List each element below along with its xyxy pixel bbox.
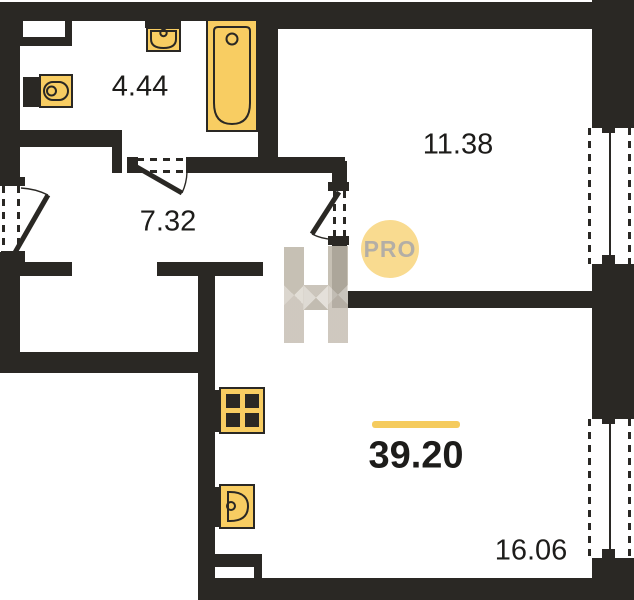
bedroom-door-swing <box>312 192 339 239</box>
room-area-hallway: 7.32 <box>140 206 196 239</box>
total-area-label: 39.20 <box>368 435 463 478</box>
toilet-icon <box>23 75 72 107</box>
room-area-bedroom: 11.38 <box>423 129 493 162</box>
watermark-pro-text: PRO <box>364 236 417 263</box>
room-area-bathroom: 4.44 <box>112 71 168 104</box>
bathroom-door-swing <box>135 166 187 193</box>
room-area-living-room: 16.06 <box>495 535 568 568</box>
kitchen-sink-icon <box>215 485 254 528</box>
entrance-door-swing <box>13 188 48 256</box>
watermark-pro-badge: PRO <box>361 220 419 278</box>
total-area-underline <box>372 421 460 428</box>
stove-icon <box>215 388 264 433</box>
bathtub-icon <box>207 20 257 131</box>
floor-plan: PRO 4.44 7.32 11.38 16.06 39.20 <box>0 0 634 600</box>
fixtures-layer <box>0 0 634 600</box>
wall-sink-icon <box>145 18 181 51</box>
